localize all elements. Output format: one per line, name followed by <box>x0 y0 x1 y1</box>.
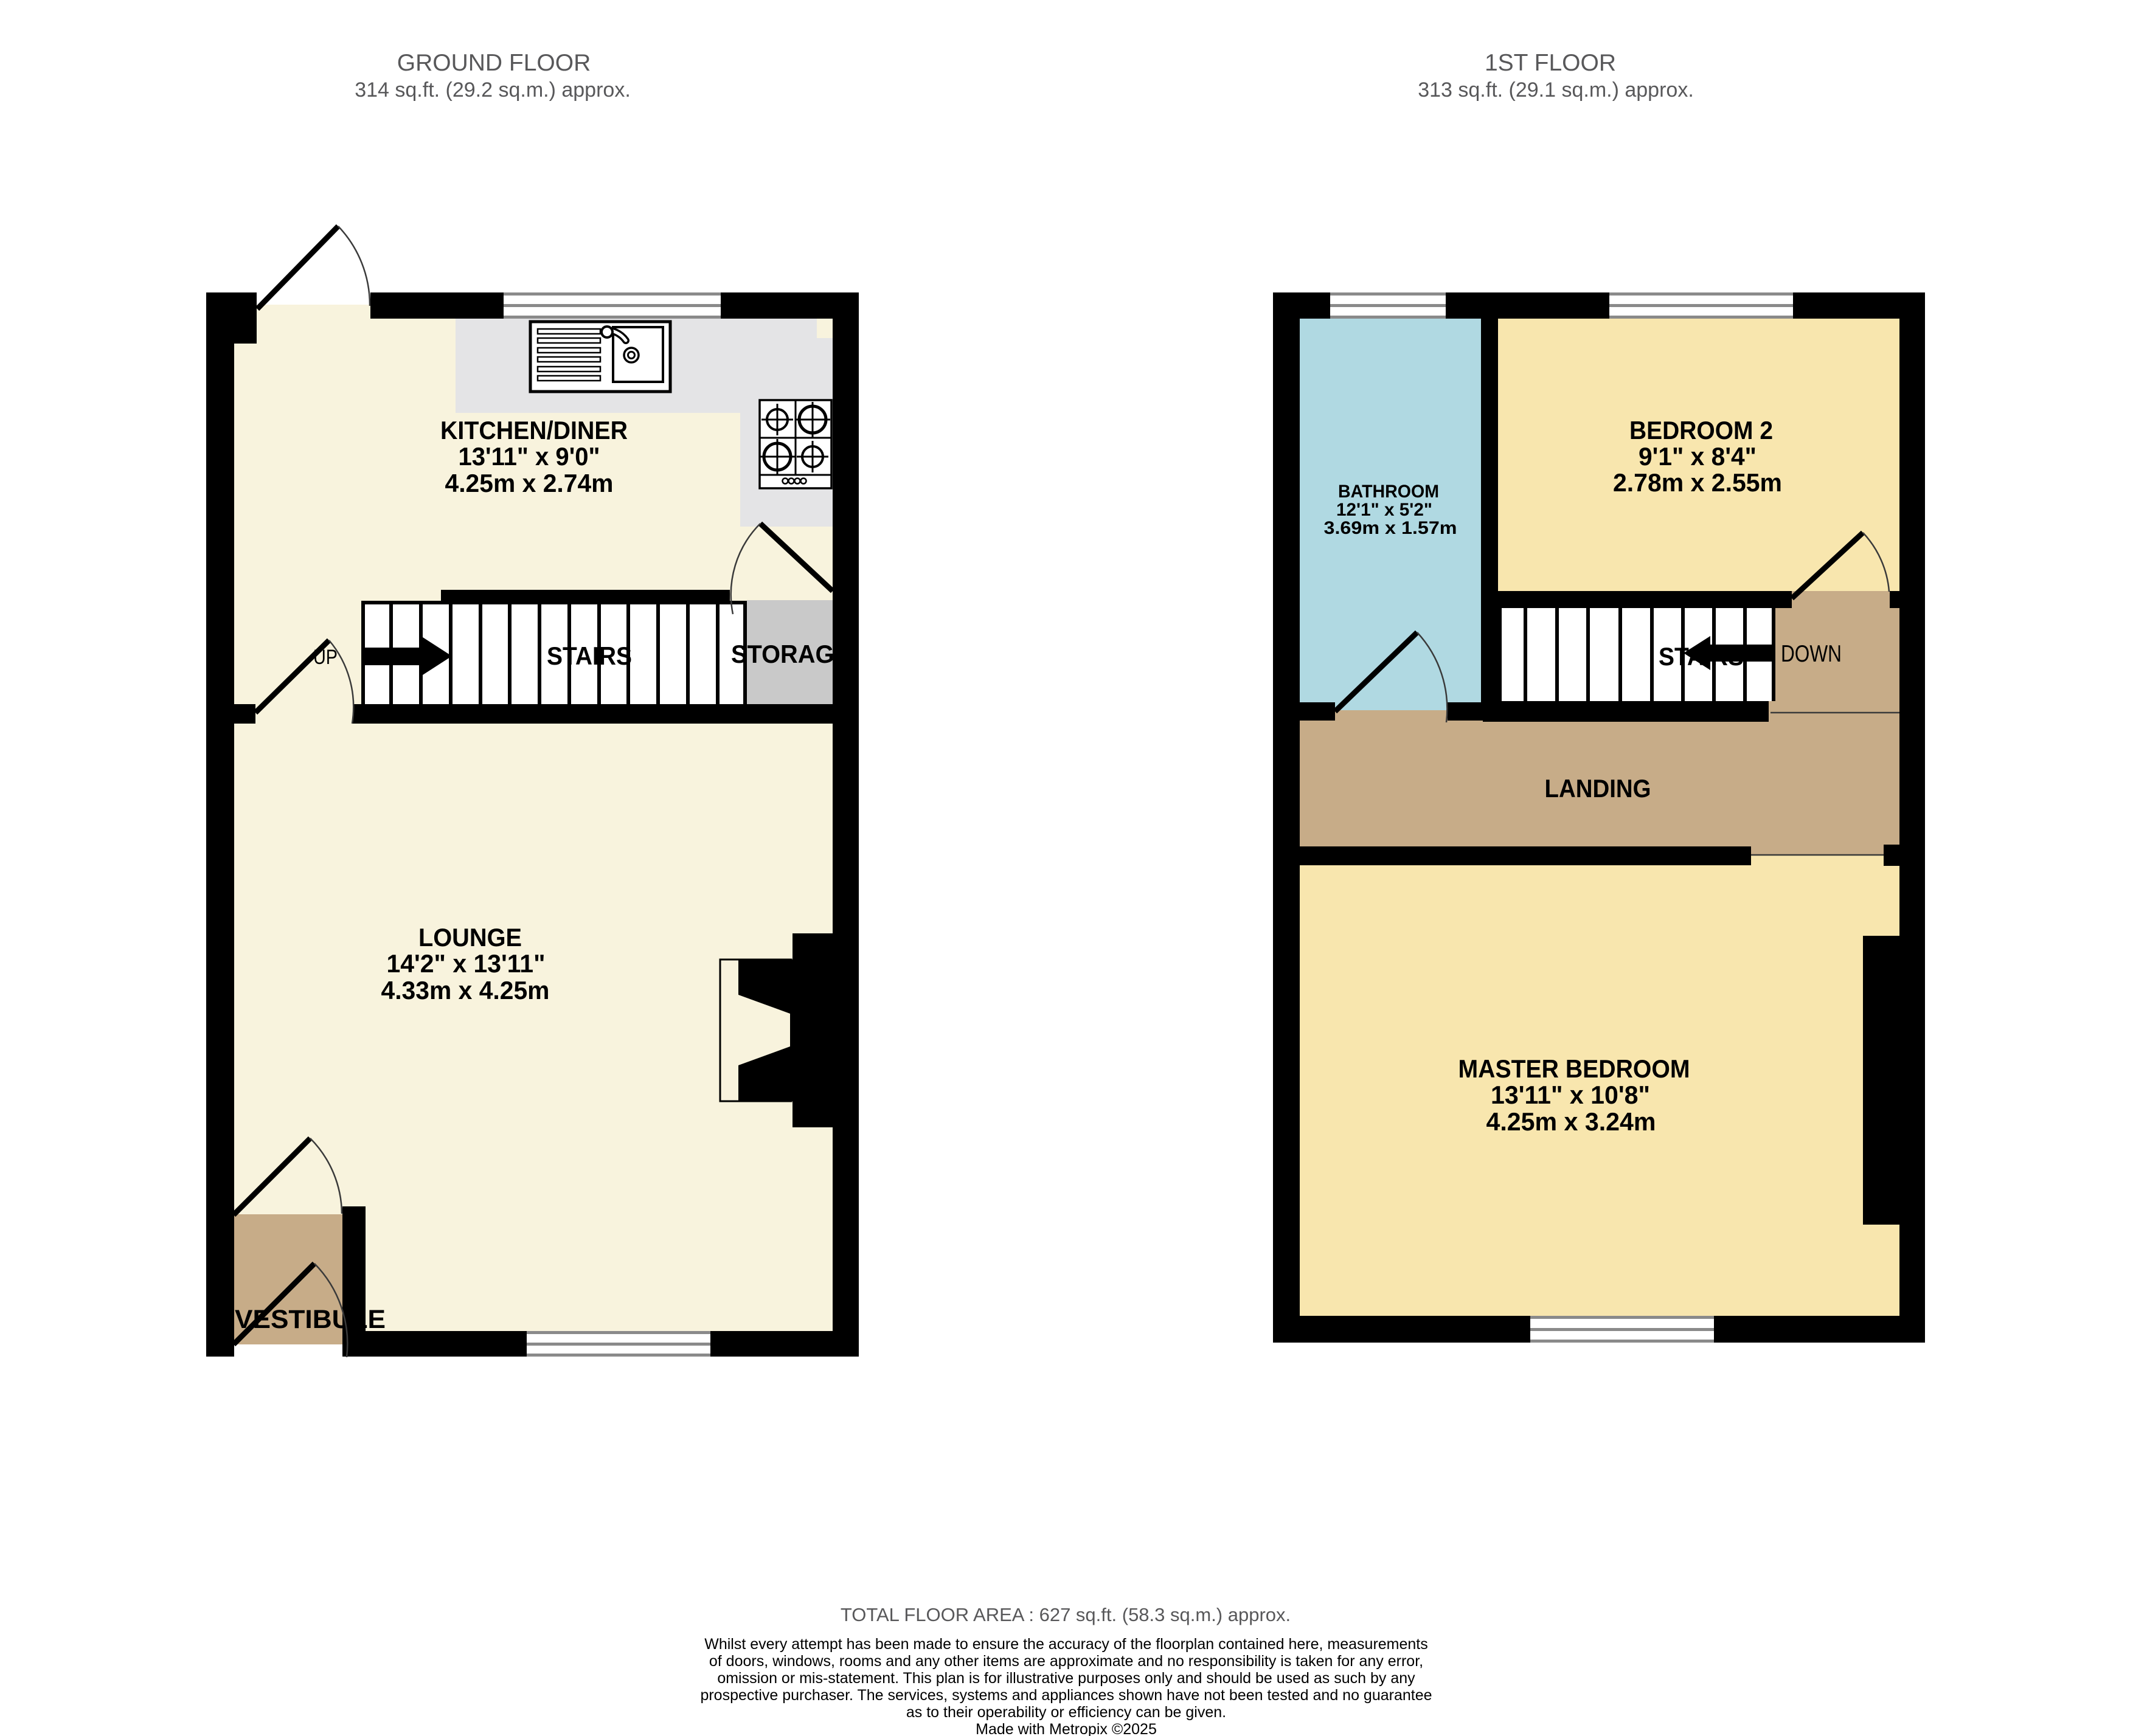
svg-text:4.33m x 4.25m: 4.33m x 4.25m <box>381 976 550 1005</box>
svg-text:omission or mis-statement. Thi: omission or mis-statement. This plan is … <box>717 1670 1415 1687</box>
svg-text:2.78m x 2.55m: 2.78m x 2.55m <box>1613 468 1782 497</box>
svg-text:4.25m x 2.74m: 4.25m x 2.74m <box>445 469 614 497</box>
svg-text:9'1" x 8'4": 9'1" x 8'4" <box>1639 442 1757 471</box>
svg-text:DOWN: DOWN <box>1781 641 1842 667</box>
svg-text:Made with Metropix ©2025: Made with Metropix ©2025 <box>976 1721 1157 1736</box>
svg-text:LANDING: LANDING <box>1545 774 1651 803</box>
svg-text:STORAGE: STORAGE <box>731 640 850 668</box>
svg-text:3.69m x 1.57m: 3.69m x 1.57m <box>1324 518 1457 538</box>
svg-text:of doors, windows, rooms and a: of doors, windows, rooms and any other i… <box>709 1653 1423 1670</box>
svg-text:BEDROOM 2: BEDROOM 2 <box>1629 416 1773 444</box>
svg-text:12'1" x 5'2": 12'1" x 5'2" <box>1336 500 1432 520</box>
svg-text:4.25m x 3.24m: 4.25m x 3.24m <box>1486 1107 1656 1136</box>
svg-text:14'2" x 13'11": 14'2" x 13'11" <box>387 949 546 978</box>
svg-text:LOUNGE: LOUNGE <box>418 923 522 952</box>
svg-text:GROUND FLOOR: GROUND FLOOR <box>397 50 591 76</box>
svg-text:313 sq.ft. (29.1 sq.m.) approx: 313 sq.ft. (29.1 sq.m.) approx. <box>1418 78 1694 102</box>
svg-text:as to their operability or eff: as to their operability or efficiency ca… <box>906 1704 1226 1721</box>
svg-text:314 sq.ft. (29.2 sq.m.) approx: 314 sq.ft. (29.2 sq.m.) approx. <box>355 78 631 102</box>
svg-text:prospective purchaser. The ser: prospective purchaser. The services, sys… <box>700 1687 1432 1704</box>
svg-text:Whilst every attempt has been: Whilst every attempt has been made to en… <box>704 1636 1428 1653</box>
svg-text:KITCHEN/DINER: KITCHEN/DINER <box>440 416 628 444</box>
svg-text:1ST FLOOR: 1ST FLOOR <box>1485 50 1616 76</box>
svg-text:TOTAL FLOOR AREA : 627 sq.ft.: TOTAL FLOOR AREA : 627 sq.ft. (58.3 sq.m… <box>841 1604 1291 1625</box>
svg-text:13'11" x 10'8": 13'11" x 10'8" <box>1491 1081 1650 1109</box>
svg-text:MASTER BEDROOM: MASTER BEDROOM <box>1458 1054 1690 1083</box>
svg-text:STAIRS: STAIRS <box>547 641 632 670</box>
svg-text:13'11" x 9'0": 13'11" x 9'0" <box>459 442 600 471</box>
svg-text:BATHROOM: BATHROOM <box>1338 482 1439 502</box>
